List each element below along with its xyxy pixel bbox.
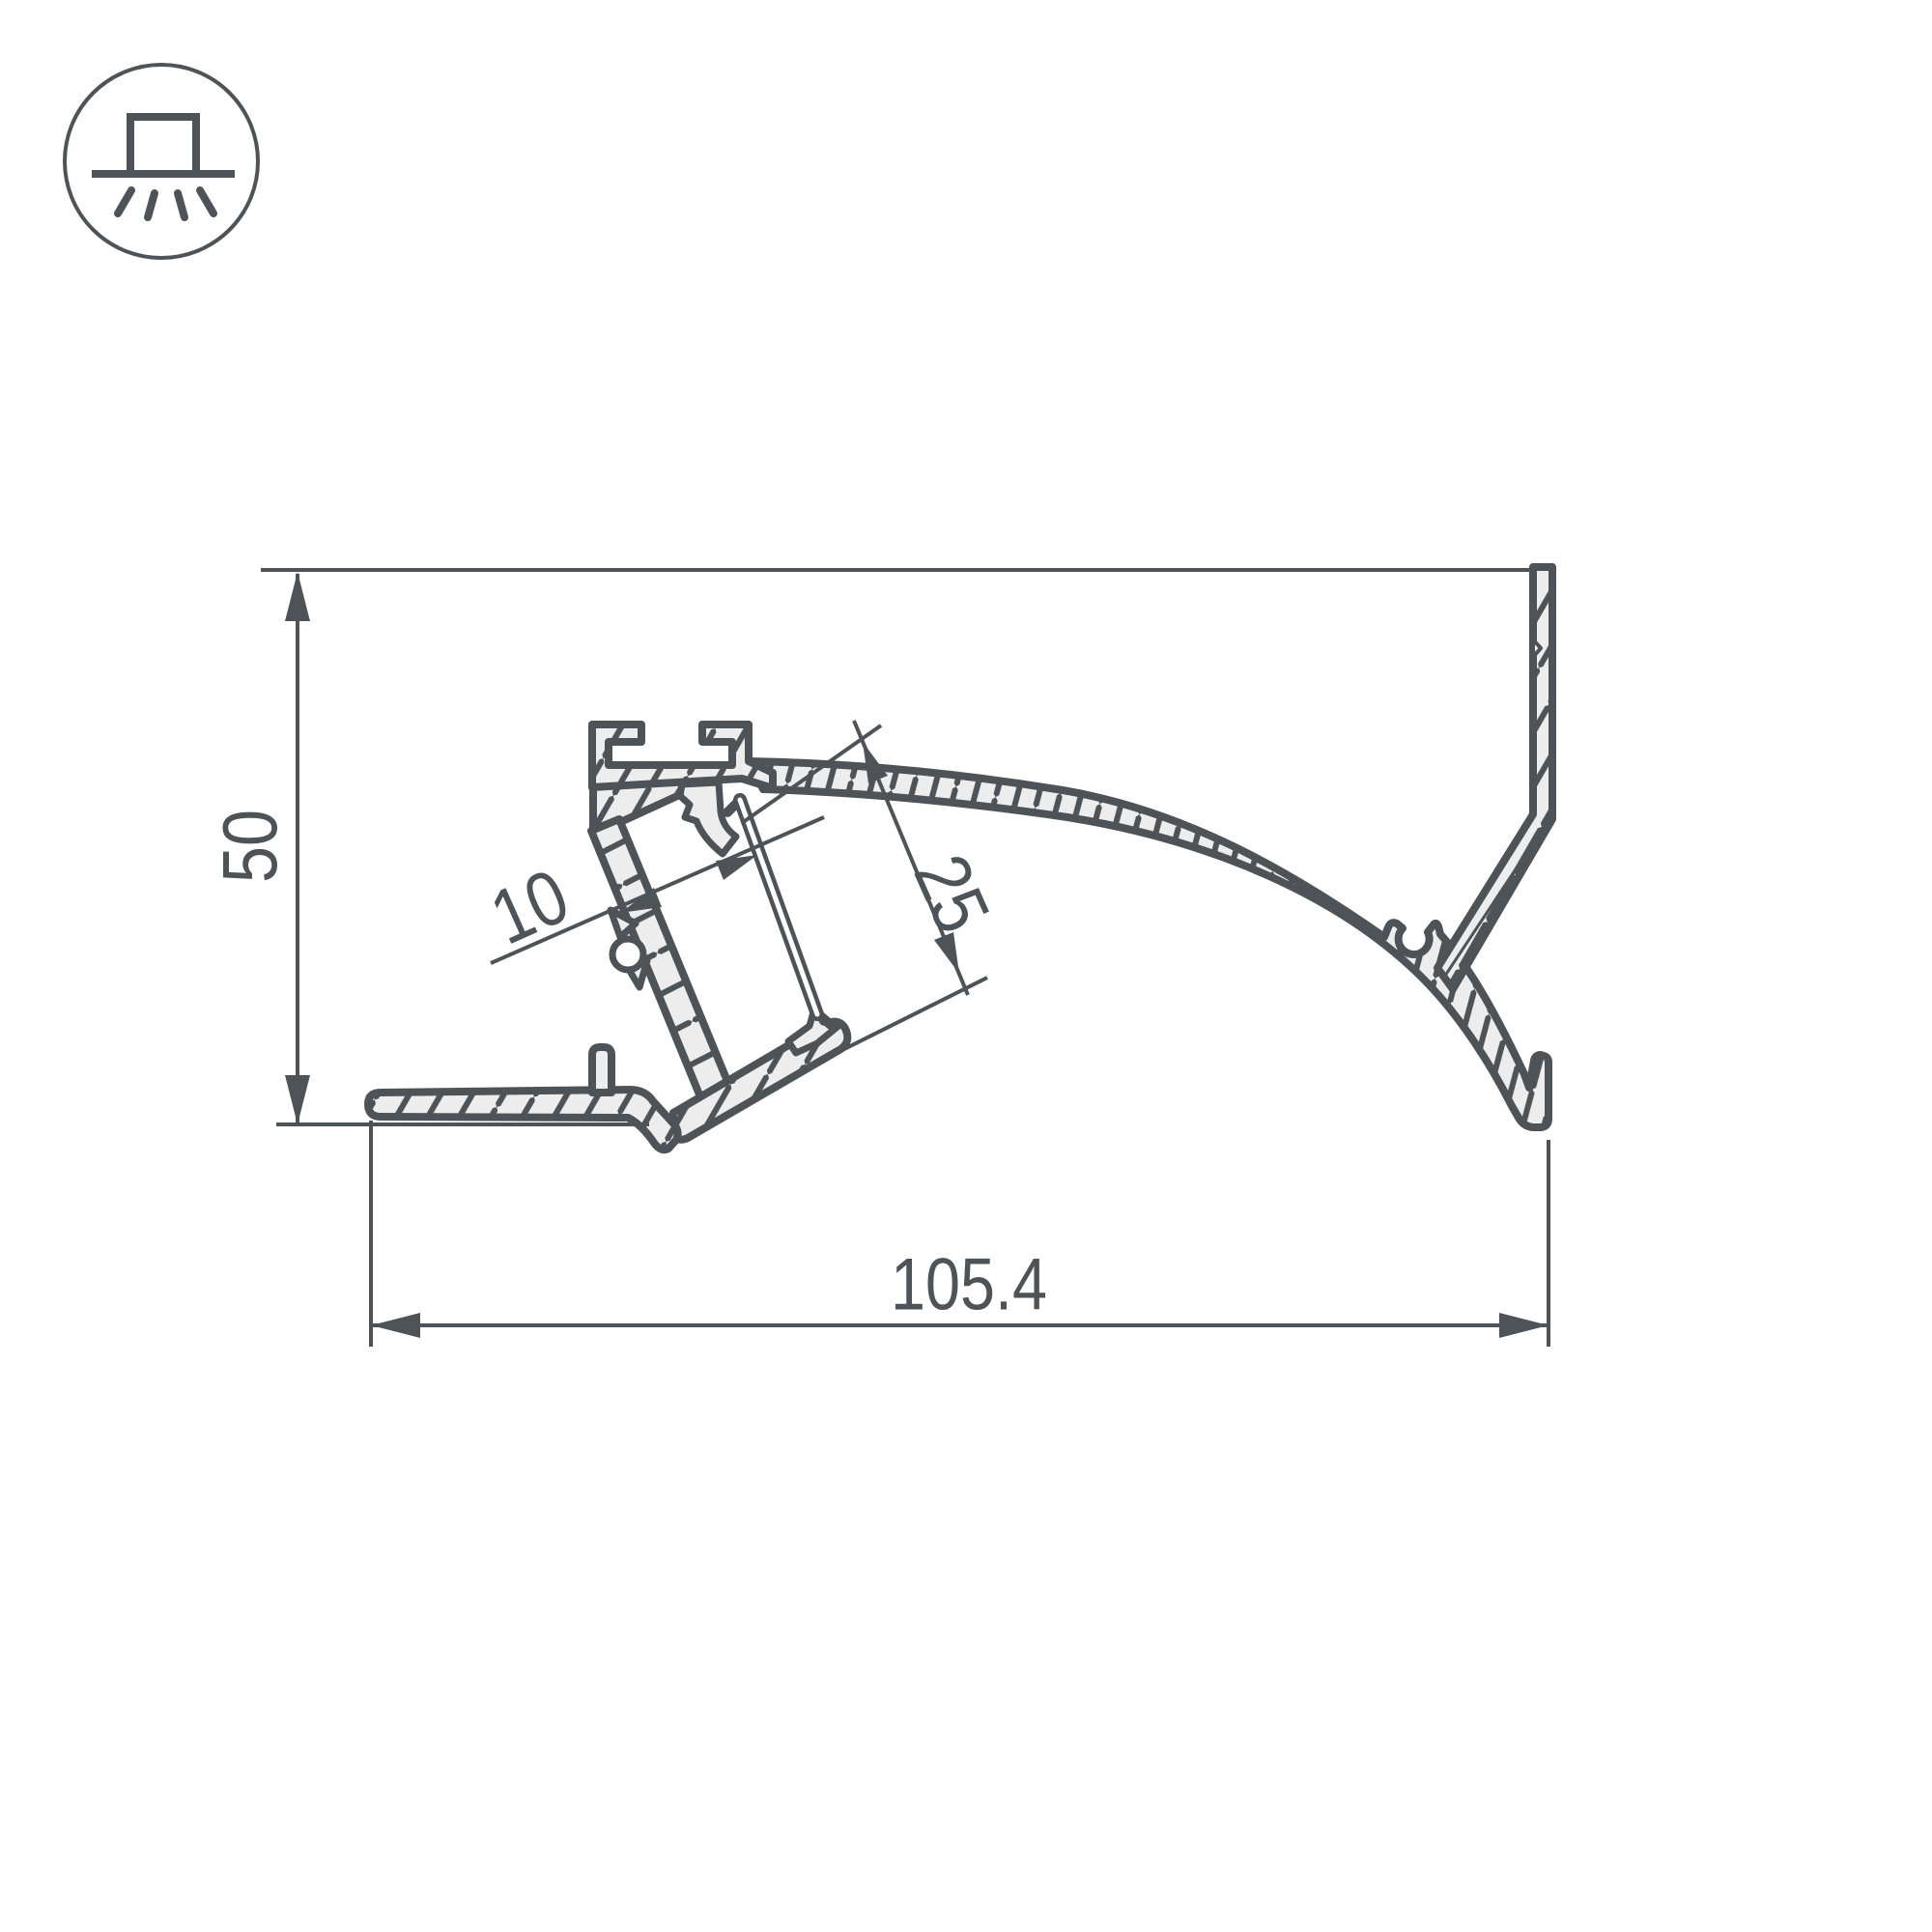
dimension-height: 50 (207, 572, 310, 1124)
dimension-width: 105.4 (371, 1244, 1548, 1338)
dimension-annotations: 50 105.4 10 25 (207, 570, 1548, 1347)
profile-bottom-flange (368, 1047, 678, 1150)
flange-locating-tab (592, 1047, 611, 1093)
dimension-label-width: 105.4 (891, 1244, 1047, 1326)
profile-curved-wing (749, 761, 1548, 1127)
dimension-label-channel-width: 10 (478, 852, 581, 960)
profile-top-rail (592, 724, 773, 788)
surface-mount-light-icon (65, 65, 258, 258)
dimension-label-channel-depth: 25 (897, 842, 1006, 945)
profile-right-branch (1437, 567, 1552, 989)
profile-diffuser-cover (727, 800, 831, 1025)
technical-drawing-page: 50 105.4 10 25 (0, 0, 1932, 1932)
upper-clip-tooth (680, 782, 736, 854)
icon-light-rays (118, 190, 213, 217)
profile-drawing-canvas: 50 105.4 10 25 (0, 0, 1932, 1932)
dimension-label-height: 50 (207, 810, 293, 883)
dimension-channel-depth: 25 (854, 721, 1007, 995)
icon-circle (65, 65, 258, 258)
icon-fixture-square (130, 117, 196, 173)
